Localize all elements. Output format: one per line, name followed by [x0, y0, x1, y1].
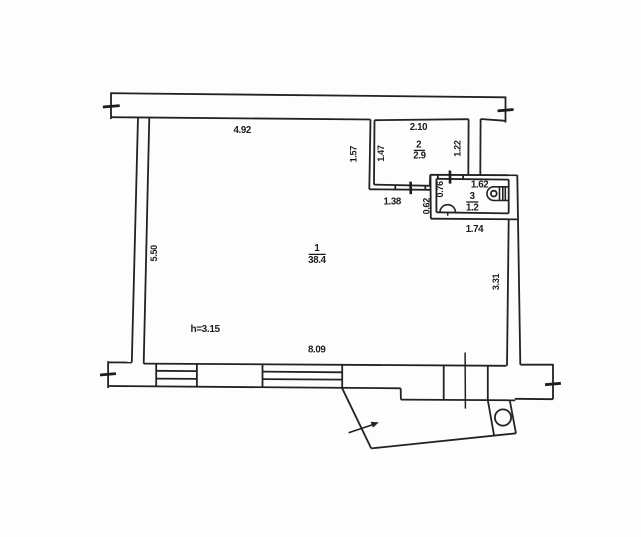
svg-text:2.10: 2.10 [410, 122, 427, 133]
svg-text:1.62: 1.62 [471, 180, 488, 191]
svg-text:1.38: 1.38 [383, 197, 401, 208]
svg-text:3.31: 3.31 [491, 273, 501, 290]
svg-text:4.92: 4.92 [233, 125, 250, 136]
svg-text:0.76: 0.76 [435, 181, 445, 198]
svg-text:8.09: 8.09 [308, 345, 326, 356]
svg-text:1.57: 1.57 [348, 146, 358, 163]
svg-text:1.22: 1.22 [453, 140, 463, 157]
svg-text:2.9: 2.9 [413, 151, 426, 162]
svg-text:1.2: 1.2 [466, 203, 478, 214]
svg-text:5.50: 5.50 [149, 245, 159, 262]
svg-text:h=3.15: h=3.15 [190, 324, 220, 335]
svg-text:2: 2 [416, 140, 421, 151]
svg-text:1.47: 1.47 [376, 145, 386, 162]
svg-text:38.4: 38.4 [308, 255, 326, 266]
svg-text:0.62: 0.62 [422, 198, 432, 215]
svg-text:1.74: 1.74 [466, 224, 484, 235]
